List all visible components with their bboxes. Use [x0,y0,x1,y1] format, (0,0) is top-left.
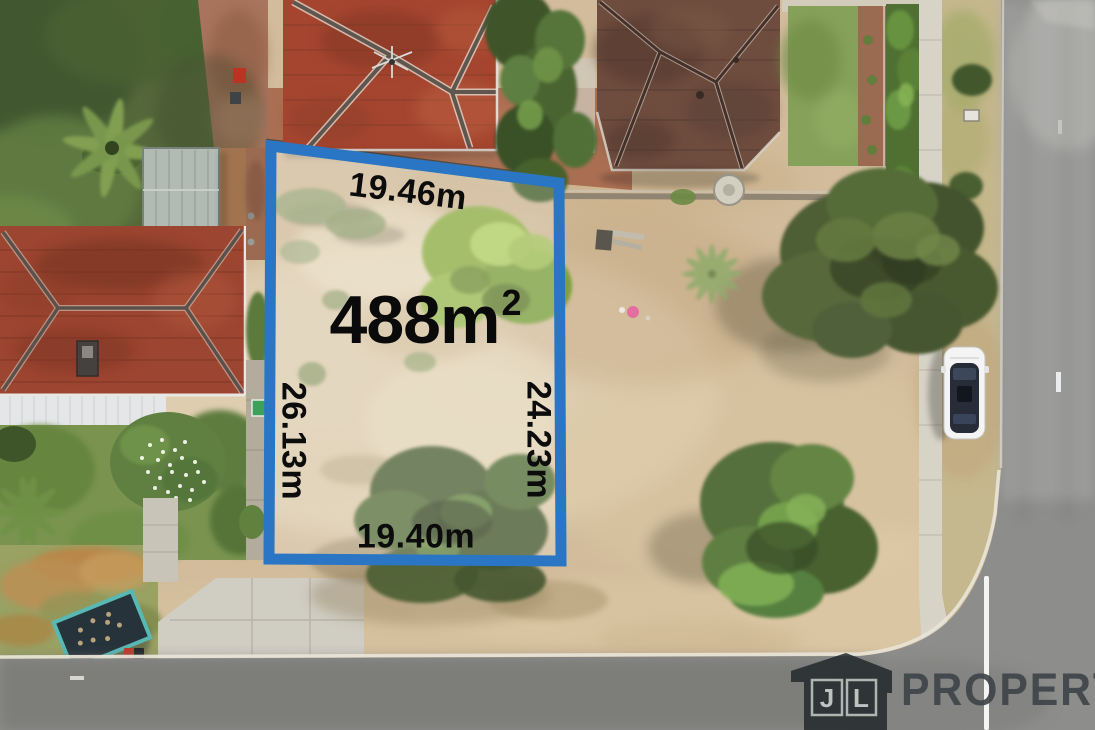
area-superscript: 2 [501,282,520,323]
house-icon: J L [785,648,897,730]
garden-beds [858,6,886,166]
area-label: 488m2 [330,281,519,359]
centre-line-dash [1056,372,1061,392]
red-bin [233,68,246,83]
pink-marker [627,306,639,318]
parked-car [941,347,989,439]
letterbox [964,110,979,121]
aerial-photo: 19.46m 26.13m 24.23m 19.40m 488m2 J L PR… [0,0,1095,730]
dimension-bottom: 19.40m [357,518,475,557]
house-right-roof [595,0,780,188]
flowering-bush [110,412,226,512]
logo-wordmark: PROPERTY [901,664,1095,716]
house-left-roof [0,226,245,396]
logo-letter-right: L [853,683,869,713]
front-garden-right [780,0,932,194]
area-value: 488m [330,282,500,358]
agency-watermark: J L PROPERTY [785,648,1095,730]
dimension-right: 24.23m [519,381,558,499]
garden-shed [143,148,227,234]
logo-letter-left: J [820,683,834,713]
green-sign [252,400,266,416]
terrain-illustration [0,0,1095,730]
dimension-left: 26.13m [274,382,313,500]
